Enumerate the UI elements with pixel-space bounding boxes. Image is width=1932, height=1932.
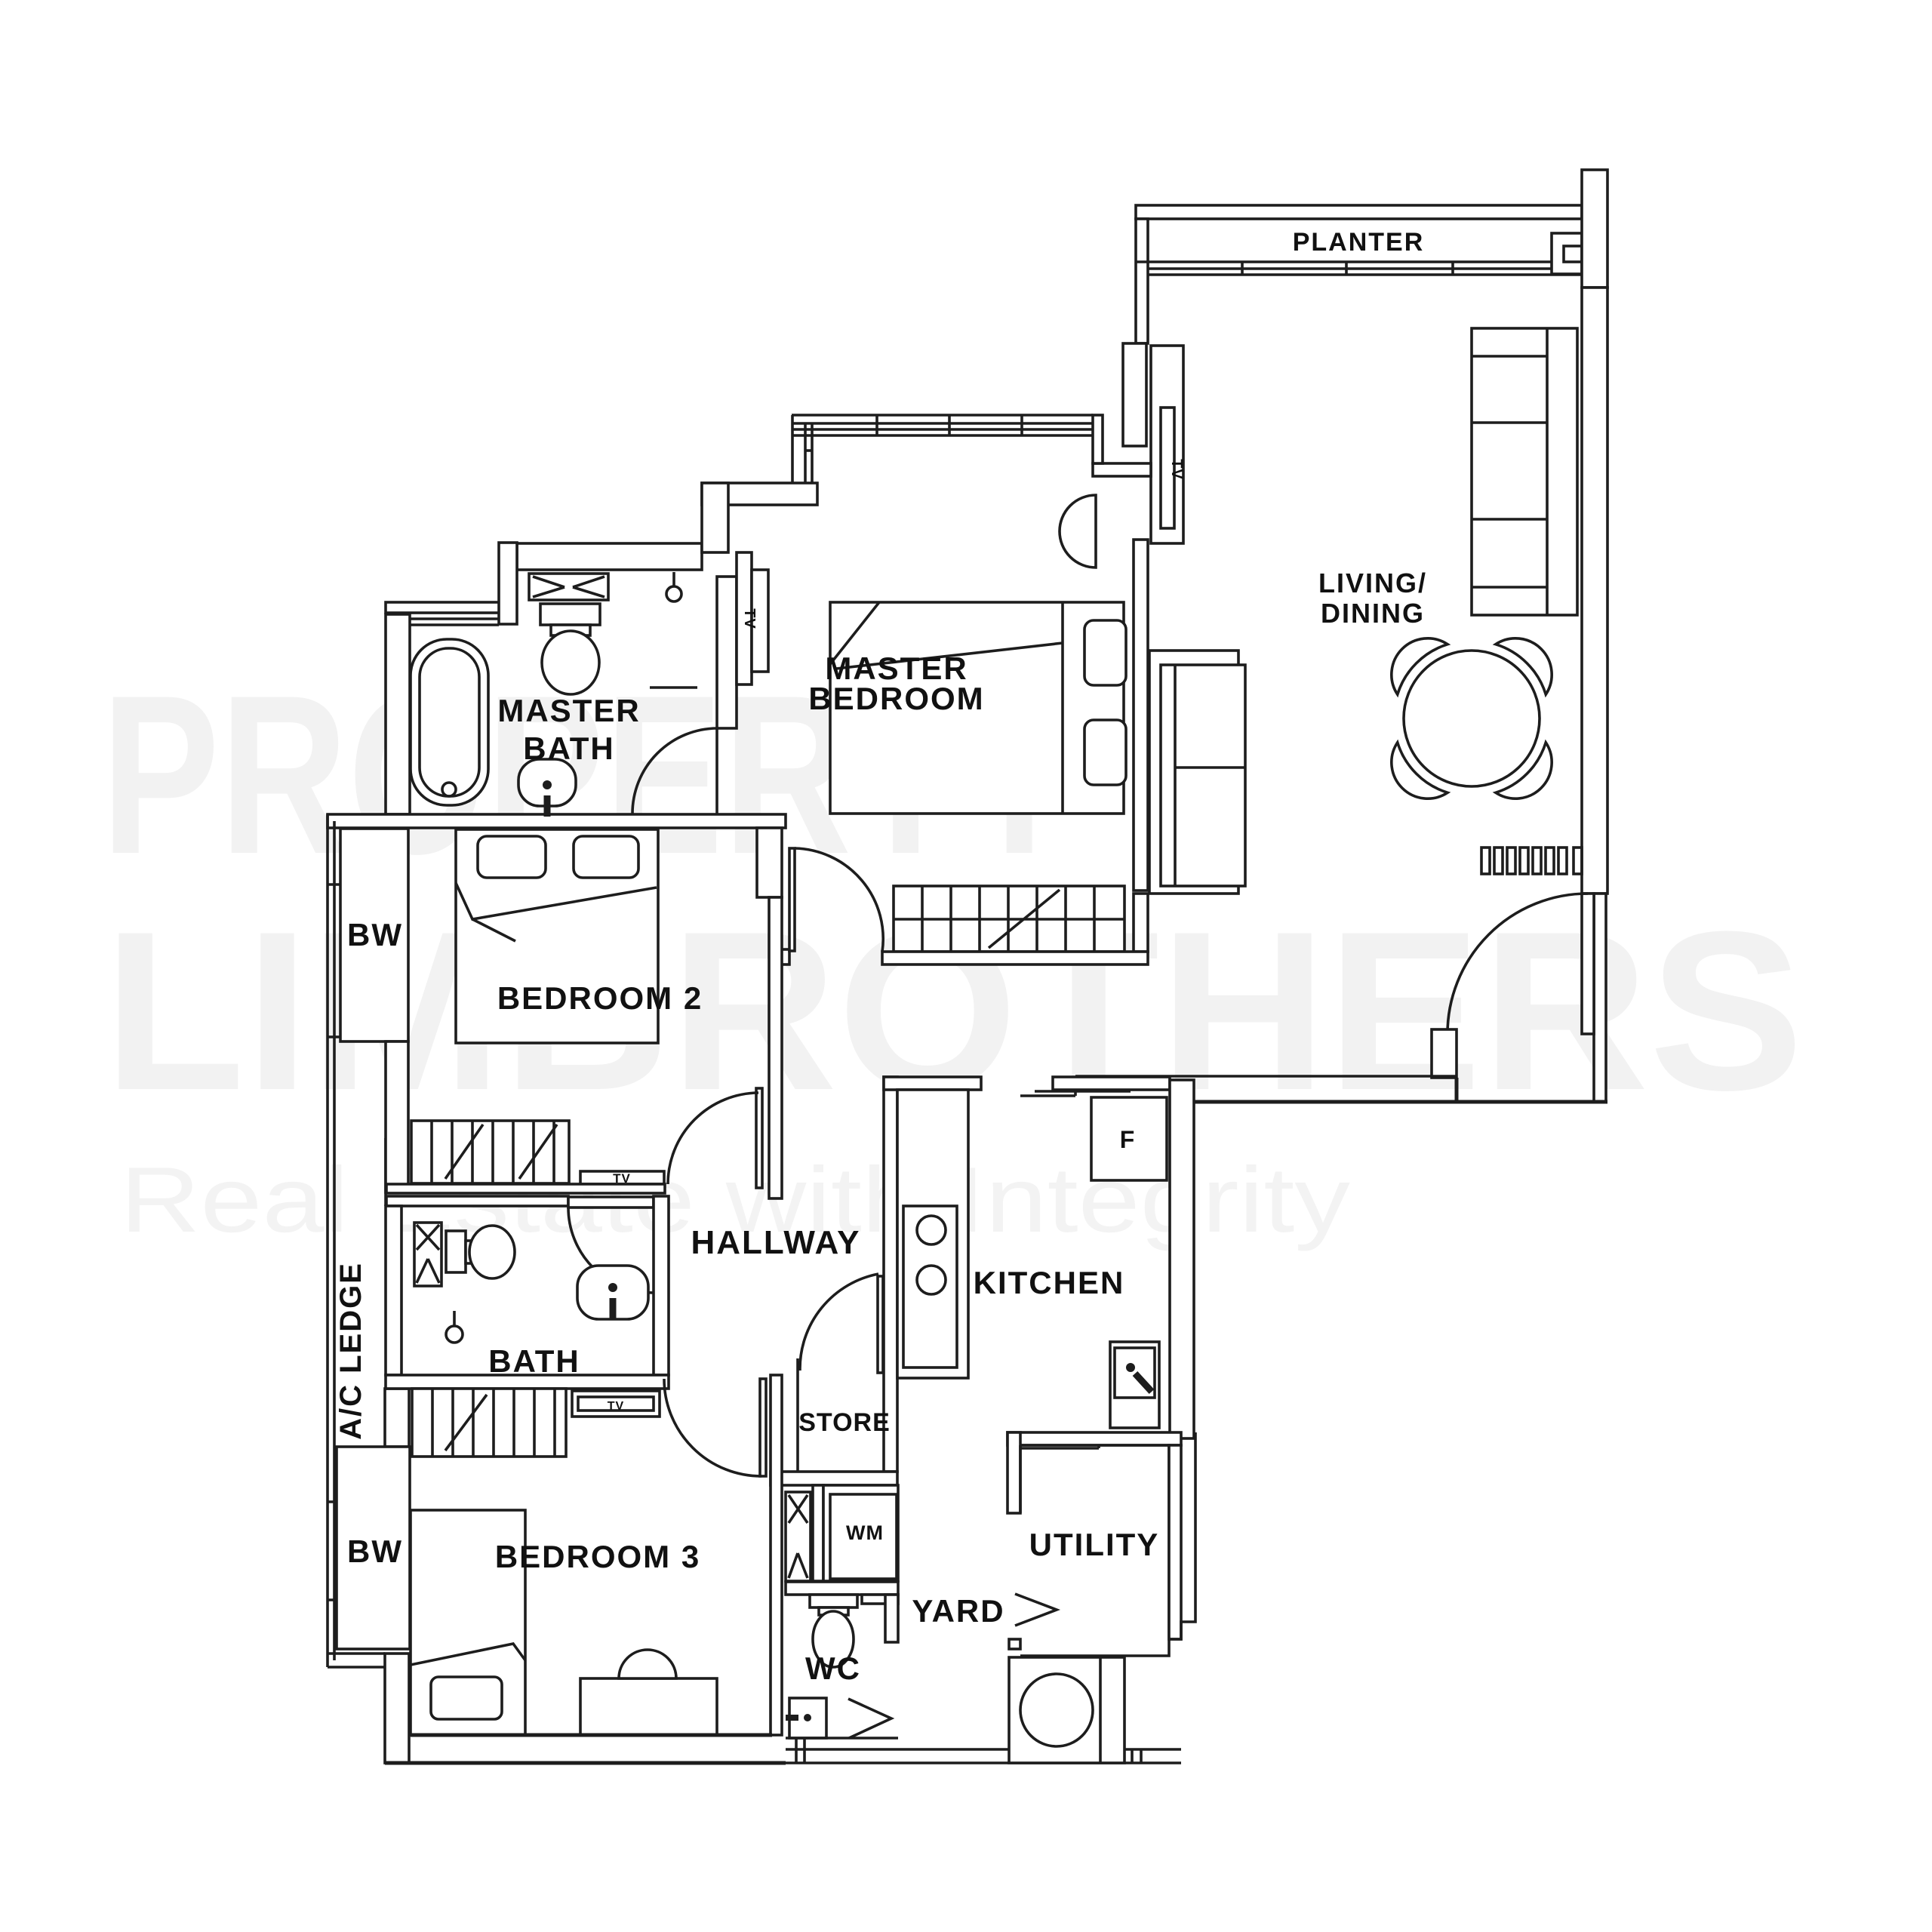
svg-text:HALLWAY: HALLWAY (691, 1224, 860, 1261)
svg-text:F: F (1120, 1126, 1136, 1153)
svg-text:BEDROOM 2: BEDROOM 2 (497, 980, 703, 1016)
svg-text:TV: TV (608, 1400, 624, 1413)
svg-text:YARD: YARD (912, 1593, 1004, 1629)
svg-text:BATH: BATH (523, 731, 615, 766)
svg-text:MASTER: MASTER (497, 693, 640, 728)
svg-text:STORE: STORE (798, 1408, 891, 1437)
svg-text:KITCHEN: KITCHEN (974, 1265, 1125, 1300)
svg-text:BEDROOM: BEDROOM (808, 681, 984, 716)
svg-text:LIVING/: LIVING/ (1318, 568, 1427, 598)
svg-text:BATH: BATH (488, 1343, 580, 1379)
svg-text:TV: TV (741, 608, 758, 629)
svg-text:BEDROOM 3: BEDROOM 3 (495, 1539, 700, 1574)
svg-text:A/C LEDGE: A/C LEDGE (334, 1262, 368, 1440)
svg-text:BW: BW (347, 917, 403, 952)
svg-text:WC: WC (805, 1651, 861, 1686)
svg-text:DINING: DINING (1321, 598, 1425, 629)
svg-text:UTILITY: UTILITY (1029, 1527, 1160, 1562)
svg-text:PLANTER: PLANTER (1293, 228, 1425, 257)
svg-text:TV: TV (1168, 459, 1185, 480)
svg-text:BW: BW (347, 1534, 403, 1569)
svg-text:WM: WM (846, 1521, 884, 1544)
